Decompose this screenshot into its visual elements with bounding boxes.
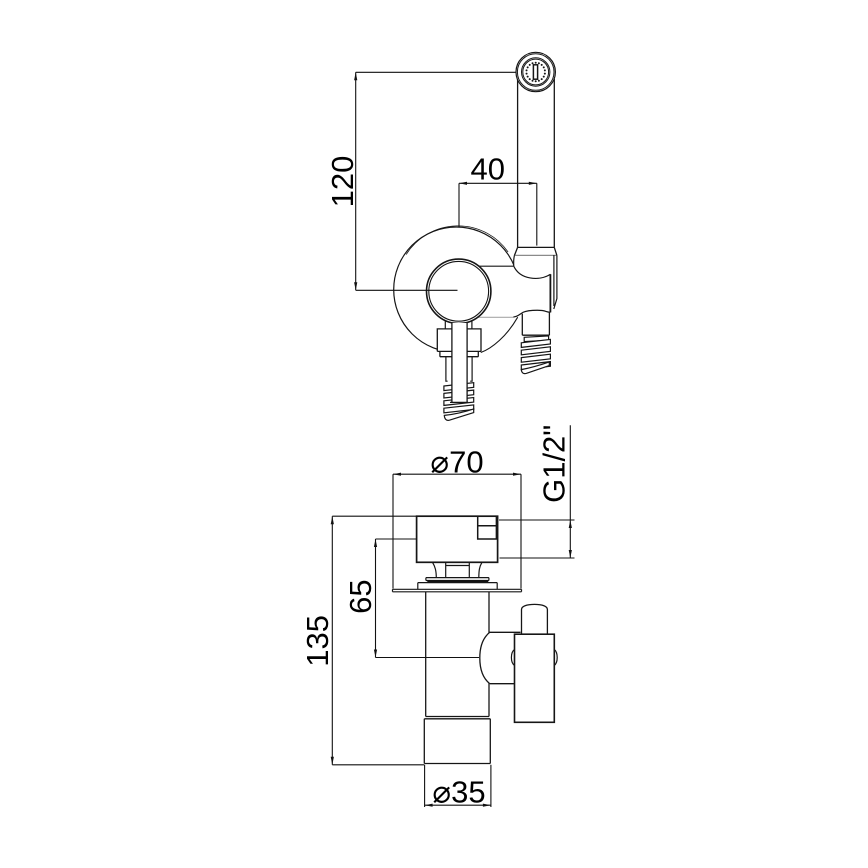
svg-text:⌀35: ⌀35: [432, 774, 485, 809]
svg-text:G1/2": G1/2": [537, 425, 572, 503]
svg-text:⌀70: ⌀70: [430, 444, 483, 479]
svg-text:120: 120: [325, 156, 360, 208]
svg-text:135: 135: [300, 615, 335, 667]
svg-text:65: 65: [343, 579, 378, 613]
svg-text:40: 40: [471, 152, 505, 187]
